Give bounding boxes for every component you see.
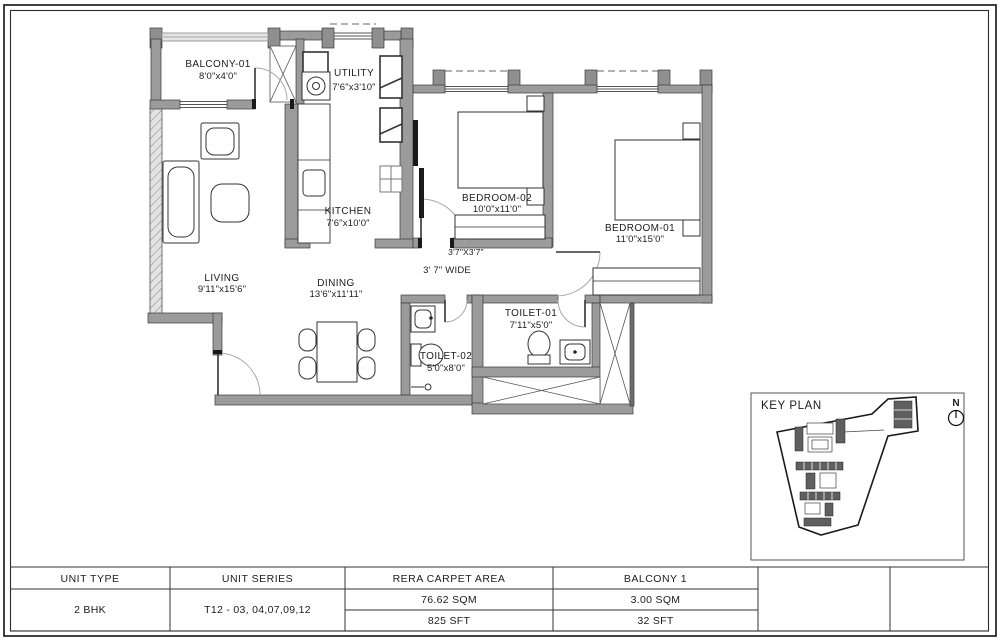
north-label: N (952, 398, 959, 409)
dining-table (317, 322, 357, 382)
drawing-sheet: BALCONY-01 8'0"x4'0" UTILITY 7'6"x3'10" … (0, 0, 1000, 640)
unit-series-header: UNIT SERIES (222, 573, 293, 585)
carpet-area-header: RERA CARPET AREA (393, 573, 506, 585)
key-plan: KEY PLAN N (751, 393, 964, 560)
door-stop (411, 384, 431, 390)
room-label-kitchen: KITCHEN (325, 206, 372, 217)
unit-info-table: UNIT TYPE UNIT SERIES RERA CARPET AREA B… (11, 567, 990, 631)
sofa (163, 161, 199, 243)
kitchen-counter (298, 104, 330, 243)
room-dims-dining: 13'6"x11'11" (309, 289, 362, 300)
unit-series-value: T12 - 03, 04,07,09,12 (204, 604, 311, 616)
balcony-sft: 32 SFT (637, 615, 674, 627)
room-label-dining: DINING (317, 278, 354, 289)
washbasin-toilet-01 (560, 340, 590, 364)
unit-type-value: 2 BHK (74, 604, 106, 616)
balcony-header: BALCONY 1 (624, 573, 687, 585)
passage-annotation: 3' 7" WIDE (423, 265, 471, 276)
washing-machine (302, 72, 330, 100)
room-dims-balcony-01: 8'0"x4'0" (199, 71, 237, 82)
wc-toilet-01 (528, 331, 550, 364)
duct-right (600, 303, 630, 404)
room-label-living: LIVING (204, 273, 239, 284)
duct-bottom (483, 377, 600, 404)
room-label-bedroom-02: BEDROOM-02 (462, 193, 532, 204)
room-label-balcony-01: BALCONY-01 (185, 59, 250, 70)
room-label-toilet-01: TOILET-01 (505, 308, 557, 319)
armchair (201, 123, 239, 159)
carpet-area-sft: 825 SFT (428, 615, 471, 627)
tall-unit (380, 108, 402, 142)
room-dims-bedroom-02: 10'0"x11'0" (473, 204, 521, 215)
wardrobe-bedroom-01 (593, 268, 700, 295)
carpet-area-sqm: 76.62 SQM (421, 594, 477, 606)
room-dims-toilet-02: 5'0"x8'0" (427, 363, 465, 374)
balcony-sqm: 3.00 SQM (631, 594, 681, 606)
room-dims-kitchen: 7'6"x10'0" (326, 218, 370, 229)
unit-type-header: UNIT TYPE (61, 573, 120, 585)
room-dims-toilet-01: 7'11"x5'0" (510, 320, 553, 331)
floor-plan-drawing: BALCONY-01 8'0"x4'0" UTILITY 7'6"x3'10" … (0, 0, 1000, 640)
key-plan-title: KEY PLAN (761, 400, 822, 412)
room-dims-bedroom-01: 11'0"x15'0" (616, 234, 664, 245)
washbasin-toilet-02 (411, 306, 435, 332)
room-label-toilet-02: TOILET-02 (420, 351, 472, 362)
wardrobe-bedroom-02 (455, 215, 545, 239)
bed-bedroom-01 (615, 123, 700, 236)
bed-bedroom-02 (458, 96, 544, 205)
coffee-table (211, 184, 249, 222)
tall-unit (380, 56, 402, 98)
junction-annotation: 3'7"X3'7" (448, 247, 484, 257)
room-dims-living: 9'11"x15'6" (198, 284, 246, 295)
room-label-bedroom-01: BEDROOM-01 (605, 223, 675, 234)
room-dims-utility: 7'6"x3'10" (332, 82, 376, 93)
room-label-utility: UTILITY (334, 68, 374, 79)
